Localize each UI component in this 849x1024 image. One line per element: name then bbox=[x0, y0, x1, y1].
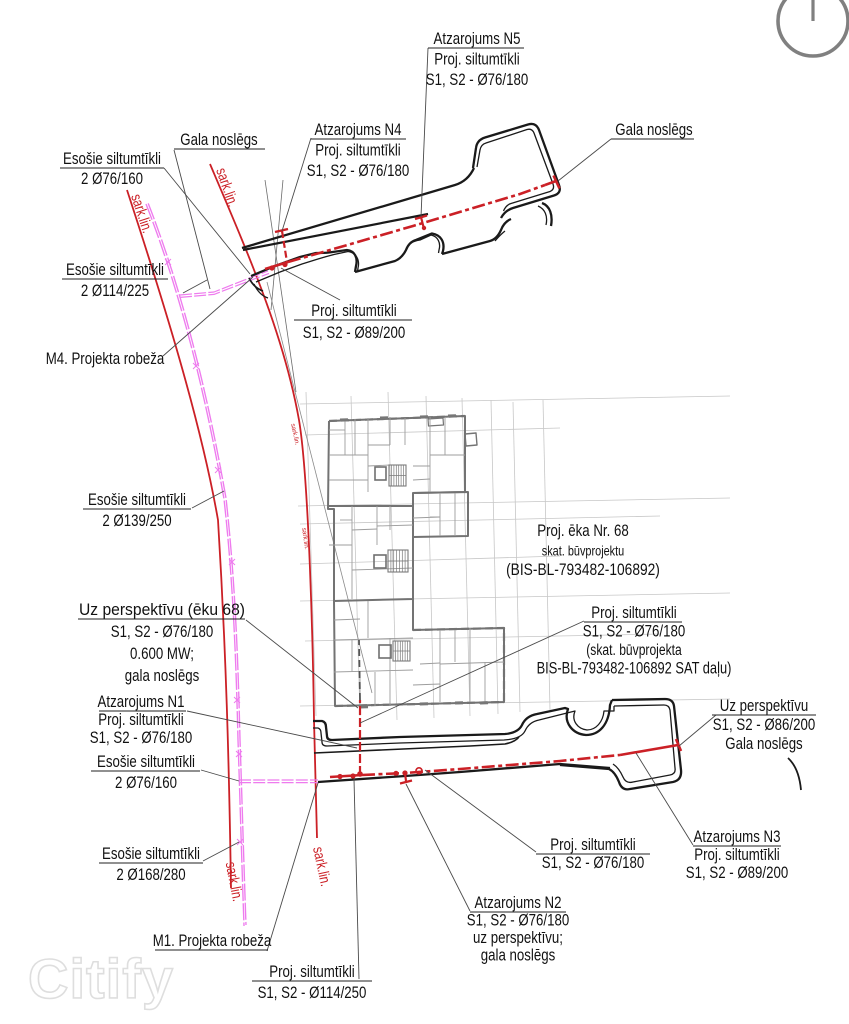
svg-text:Proj. siltumtīkli: Proj. siltumtīkli bbox=[434, 50, 520, 69]
svg-text:sark.lin.: sark.lin. bbox=[289, 423, 300, 446]
svg-text:Proj. siltumtīkli: Proj. siltumtīkli bbox=[98, 710, 184, 729]
svg-text:2 Ø76/160: 2 Ø76/160 bbox=[81, 169, 143, 188]
svg-text:2 Ø168/280: 2 Ø168/280 bbox=[116, 865, 185, 884]
svg-text:sark.lin.: sark.lin. bbox=[309, 845, 334, 888]
svg-text:Atzarojums N3: Atzarojums N3 bbox=[694, 827, 781, 846]
svg-text:Esošie siltumtīkli: Esošie siltumtīkli bbox=[88, 490, 186, 509]
svg-text:gala noslēgs: gala noslēgs bbox=[481, 946, 556, 965]
svg-text:Proj. siltumtīkli: Proj. siltumtīkli bbox=[269, 962, 355, 981]
svg-text:S1, S2 - Ø76/180: S1, S2 - Ø76/180 bbox=[111, 622, 213, 641]
svg-text:S1, S2 - Ø76/180: S1, S2 - Ø76/180 bbox=[583, 622, 685, 641]
svg-text:skat. būvprojektu: skat. būvprojektu bbox=[542, 543, 625, 559]
svg-text:uz perspektīvu;: uz perspektīvu; bbox=[473, 928, 563, 947]
svg-text:sark.lin.: sark.lin. bbox=[212, 166, 241, 209]
svg-text:Atzarojums N4: Atzarojums N4 bbox=[315, 120, 402, 139]
svg-text:Proj. siltumtīkli: Proj. siltumtīkli bbox=[591, 603, 677, 622]
svg-text:S1, S2 - Ø86/200: S1, S2 - Ø86/200 bbox=[713, 715, 815, 734]
svg-text:Proj. siltumtīkli: Proj. siltumtīkli bbox=[694, 845, 780, 864]
svg-text:S1, S2 - Ø76/180: S1, S2 - Ø76/180 bbox=[467, 911, 569, 930]
svg-text:Gala noslēgs: Gala noslēgs bbox=[615, 120, 692, 139]
svg-text:2 Ø76/160: 2 Ø76/160 bbox=[115, 773, 177, 792]
svg-text:Uz perspektīvu: Uz perspektīvu bbox=[720, 696, 808, 715]
svg-text:(skat. būvprojekta: (skat. būvprojekta bbox=[586, 642, 682, 659]
svg-text:0.600 MW;: 0.600 MW; bbox=[130, 644, 194, 663]
svg-text:Gala noslēgs: Gala noslēgs bbox=[180, 130, 257, 149]
svg-text:Proj. siltumtīkli: Proj. siltumtīkli bbox=[315, 141, 401, 160]
svg-text:Proj. siltumtīkli: Proj. siltumtīkli bbox=[311, 301, 397, 320]
svg-text:Esošie siltumtīkli: Esošie siltumtīkli bbox=[102, 844, 200, 863]
svg-text:Proj. ēka Nr. 68: Proj. ēka Nr. 68 bbox=[537, 521, 628, 540]
svg-text:gala noslēgs: gala noslēgs bbox=[125, 666, 200, 685]
svg-text:Proj. siltumtīkli: Proj. siltumtīkli bbox=[550, 835, 636, 854]
svg-text:Esošie siltumtīkli: Esošie siltumtīkli bbox=[97, 752, 195, 771]
svg-text:S1, S2 - Ø76/180: S1, S2 - Ø76/180 bbox=[542, 853, 644, 872]
svg-text:Esošie siltumtīkli: Esošie siltumtīkli bbox=[66, 260, 164, 279]
svg-text:Atzarojums N5: Atzarojums N5 bbox=[434, 29, 521, 48]
svg-text:M4. Projekta robeža: M4. Projekta robeža bbox=[46, 349, 165, 368]
svg-text:S1, S2 - Ø89/200: S1, S2 - Ø89/200 bbox=[303, 323, 405, 342]
svg-text:Esošie siltumtīkli: Esošie siltumtīkli bbox=[63, 149, 161, 168]
svg-text:Uz perspektīvu (ēku 68): Uz perspektīvu (ēku 68) bbox=[79, 600, 245, 619]
svg-text:S1, S2 - Ø114/250: S1, S2 - Ø114/250 bbox=[258, 983, 367, 1002]
svg-text:S1, S2 - Ø76/180: S1, S2 - Ø76/180 bbox=[307, 161, 409, 180]
svg-text:(BIS-BL-793482-106892): (BIS-BL-793482-106892) bbox=[506, 560, 660, 579]
svg-text:Atzarojums N2: Atzarojums N2 bbox=[475, 893, 562, 912]
svg-text:2 Ø139/250: 2 Ø139/250 bbox=[102, 511, 171, 530]
svg-text:Gala noslēgs: Gala noslēgs bbox=[725, 734, 802, 753]
svg-text:2 Ø114/225: 2 Ø114/225 bbox=[81, 281, 149, 300]
svg-text:S1, S2 - Ø76/180: S1, S2 - Ø76/180 bbox=[426, 70, 528, 89]
svg-text:Citify: Citify bbox=[28, 947, 174, 1010]
svg-text:BIS-BL-793482-106892 SAT daļu): BIS-BL-793482-106892 SAT daļu) bbox=[537, 660, 732, 678]
svg-text:S1, S2 - Ø76/180: S1, S2 - Ø76/180 bbox=[90, 728, 192, 747]
svg-text:Atzarojums N1: Atzarojums N1 bbox=[98, 692, 185, 711]
svg-text:S1, S2 - Ø89/200: S1, S2 - Ø89/200 bbox=[686, 863, 788, 882]
